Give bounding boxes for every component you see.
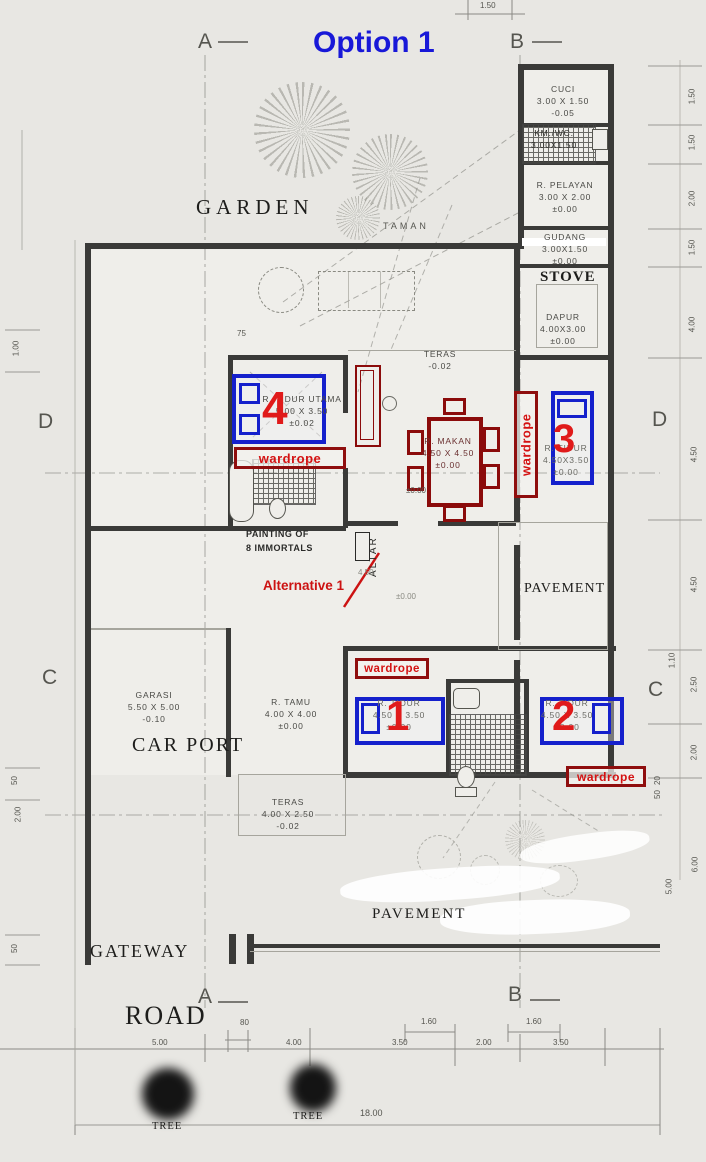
page-title: Option 1 bbox=[313, 26, 435, 60]
dim-right: 1.50 bbox=[687, 240, 696, 256]
wall-segment bbox=[520, 226, 608, 230]
dim-right: 1.10 bbox=[667, 653, 676, 669]
tree-label-2: TREE bbox=[293, 1111, 323, 1122]
dim-right: 4.50 bbox=[689, 447, 698, 463]
dim-total: 18.00 bbox=[360, 1108, 383, 1118]
room-name: R. MAKAN bbox=[422, 436, 474, 448]
garden-tree-icon bbox=[336, 196, 380, 240]
room-label-dapur: DAPUR 4.00X3.00 ±0.00 bbox=[540, 312, 586, 348]
pillow-icon bbox=[592, 703, 611, 734]
wardrobe-label-2: wardrope bbox=[566, 766, 646, 787]
gateway-post bbox=[247, 934, 254, 964]
room-level: ±0.00 bbox=[540, 336, 586, 348]
area-label-road: ROAD bbox=[125, 1001, 207, 1031]
room-dims: 5.50 X 5.00 bbox=[128, 702, 180, 714]
room-dims: 4.00 X 2.50 bbox=[262, 809, 314, 821]
painting-note-line2: 8 IMMORTALS bbox=[246, 542, 313, 556]
area-label-pavement-mid: PAVEMENT bbox=[524, 581, 605, 597]
tree-label-1: TREE bbox=[152, 1121, 182, 1132]
painting-note-line1: PAINTING OF bbox=[246, 528, 313, 542]
room-number-1: 1 bbox=[386, 692, 409, 740]
dim-right: 2.00 bbox=[689, 745, 698, 761]
wardrobe-label-1: wardrope bbox=[355, 658, 429, 679]
room-name: GARASI bbox=[128, 690, 180, 702]
faint-dim-fragment: 4.50 bbox=[358, 568, 374, 577]
chair-icon bbox=[443, 398, 466, 415]
floor-plan-sheet: Option 1 A B A B D D C C CUCI 3.00 X 1.5… bbox=[0, 0, 706, 1162]
sink-icon bbox=[453, 688, 480, 709]
dim-bottom-upper: 80 bbox=[240, 1018, 249, 1027]
room-level: ±0.00 bbox=[543, 467, 589, 479]
room-label-teras-bottom: TERAS 4.00 X 2.50 -0.02 bbox=[262, 797, 314, 833]
room-name: TERAS bbox=[262, 797, 314, 809]
pillow-icon bbox=[239, 414, 260, 435]
wardrobe-label-4: wardrope bbox=[234, 447, 346, 469]
chair-icon bbox=[443, 505, 466, 522]
room-label-tamu: R. TAMU 4.00 X 4.00 ±0.00 bbox=[265, 697, 317, 733]
dim-bottom-upper: 1.60 bbox=[526, 1017, 542, 1026]
area-label-stove: STOVE bbox=[540, 269, 596, 286]
dim-bottom: 5.00 bbox=[152, 1038, 168, 1047]
dim-right: 4.50 bbox=[689, 577, 698, 593]
dim-left: 1.00 bbox=[11, 341, 20, 357]
wall-segment bbox=[343, 646, 348, 777]
wall-segment bbox=[518, 64, 614, 70]
area-label-garden: GARDEN bbox=[196, 195, 314, 220]
garden-circle-feature bbox=[258, 267, 304, 313]
dim-right: 1.50 bbox=[687, 89, 696, 105]
dim-bottom: 3.50 bbox=[392, 1038, 408, 1047]
room-label-cuci: CUCI 3.00 X 1.50 -0.05 bbox=[537, 84, 589, 120]
dim-right: 2.50 bbox=[689, 677, 698, 693]
grid-label-c-right: C bbox=[648, 678, 663, 702]
room-number-4: 4 bbox=[262, 381, 288, 435]
planter-divider bbox=[348, 272, 349, 308]
room-name: GUDANG bbox=[542, 232, 588, 244]
dim-left: 50 bbox=[10, 776, 19, 785]
boundary-wall-line bbox=[250, 951, 660, 952]
room-level: ±0.00 bbox=[265, 721, 317, 733]
pillow-icon bbox=[239, 383, 260, 404]
grid-label-a-top: A bbox=[198, 30, 212, 54]
alternative-label: Alternative 1 bbox=[263, 578, 344, 593]
room-dims: 3.00X1.50 bbox=[542, 244, 588, 256]
room-dims: 3.00 X 2.00 bbox=[537, 192, 594, 204]
dim-75: 75 bbox=[237, 329, 246, 338]
grid-label-d-left: D bbox=[38, 410, 53, 434]
boundary-wall bbox=[250, 944, 660, 948]
wall-segment bbox=[446, 679, 529, 683]
dim-bottom: 4.00 bbox=[286, 1038, 302, 1047]
dim-bottom-upper: 1.60 bbox=[421, 1017, 437, 1026]
room-name: R. TAMU bbox=[265, 697, 317, 709]
wall-segment bbox=[85, 243, 91, 965]
room-label-makan: R. MAKAN 4.50 X 4.50 ±0.00 bbox=[422, 436, 474, 472]
room-level: ±0.00 bbox=[422, 460, 474, 472]
room-dims: 3.00X1.50 bbox=[531, 140, 577, 152]
dim-bottom: 3.50 bbox=[553, 1038, 569, 1047]
room-dims: 3.00 X 1.50 bbox=[537, 96, 589, 108]
room-label-teras-top: TERAS -0.02 bbox=[424, 349, 456, 373]
room-label-gudang: GUDANG 3.00X1.50 ±0.00 bbox=[542, 232, 588, 268]
room-name: R. PELAYAN bbox=[537, 180, 594, 192]
dim-top: 1.50 bbox=[480, 1, 496, 10]
area-label-gateway: GATEWAY bbox=[90, 941, 189, 962]
dim-left: 2.00 bbox=[13, 807, 22, 823]
area-label-taman: TAMAN bbox=[383, 221, 429, 231]
road-tree-icon bbox=[290, 1064, 336, 1112]
room-name: CUCI bbox=[537, 84, 589, 96]
planter-divider bbox=[380, 272, 381, 308]
garden-tree-icon bbox=[254, 82, 350, 178]
light-fixture-icon bbox=[382, 396, 397, 411]
dim-right: 2.00 bbox=[687, 191, 696, 207]
gateway-post bbox=[229, 934, 236, 964]
area-label-car-port: CAR PORT bbox=[132, 734, 244, 757]
grid-label-b-top: B bbox=[510, 30, 524, 54]
chair-icon bbox=[483, 427, 500, 452]
road-tree-icon bbox=[142, 1068, 194, 1120]
dim-right: 5.00 bbox=[664, 879, 673, 895]
wall-segment bbox=[343, 355, 348, 413]
room-label-garasi: GARASI 5.50 X 5.00 -0.10 bbox=[128, 690, 180, 726]
room-name: KM./WC. bbox=[531, 128, 577, 140]
dim-right: 6.00 bbox=[690, 857, 699, 873]
room-level: -0.02 bbox=[262, 821, 314, 833]
room-label-kmwc-annex: KM./WC. 3.00X1.50 bbox=[531, 128, 577, 152]
wardrobe-label-3: wardrope bbox=[514, 391, 538, 498]
room-level: -0.05 bbox=[537, 108, 589, 120]
room-level: ±0.00 bbox=[542, 256, 588, 268]
garden-planter-feature bbox=[318, 271, 415, 311]
room-number-3: 3 bbox=[553, 417, 575, 462]
wall-segment bbox=[608, 64, 614, 778]
wall-segment bbox=[520, 355, 608, 360]
room-level: -0.10 bbox=[128, 714, 180, 726]
room-level: ±0.00 bbox=[537, 204, 594, 216]
wall-segment bbox=[228, 355, 346, 360]
room-name: TERAS bbox=[424, 349, 456, 361]
dim-left: 50 bbox=[10, 944, 19, 953]
room-name: DAPUR bbox=[540, 312, 586, 324]
carport-edge bbox=[91, 628, 226, 630]
toilet-icon bbox=[592, 129, 608, 150]
room-level: -0.02 bbox=[424, 361, 456, 373]
bathtub-icon bbox=[229, 460, 254, 522]
chair-icon bbox=[483, 464, 500, 489]
room-dims: 4.50 X 4.50 bbox=[422, 448, 474, 460]
dim-right: 1.50 bbox=[687, 135, 696, 151]
wall-segment bbox=[343, 468, 348, 528]
area-label-pavement-bottom: PAVEMENT bbox=[372, 906, 466, 923]
grid-label-c-left: C bbox=[42, 666, 57, 690]
faint-level-fragment: ±0.00 bbox=[396, 592, 416, 601]
toilet-tank bbox=[455, 787, 477, 797]
wall-segment bbox=[514, 243, 520, 357]
room-label-pelayan: R. PELAYAN 3.00 X 2.00 ±0.00 bbox=[537, 180, 594, 216]
room-dims: 4.00 X 4.00 bbox=[265, 709, 317, 721]
dim-right: 50 bbox=[653, 790, 662, 799]
toilet-icon bbox=[269, 498, 286, 519]
wall-segment bbox=[346, 521, 398, 526]
faint-level-foyer: ±0.00 bbox=[406, 486, 426, 495]
wall-segment bbox=[85, 243, 520, 249]
pillow-icon bbox=[557, 399, 587, 418]
painting-note: PAINTING OF 8 IMMORTALS bbox=[246, 528, 313, 555]
grid-label-b-bottom: B bbox=[508, 983, 522, 1007]
cabinet-inner bbox=[360, 370, 374, 440]
grid-label-d-right: D bbox=[652, 408, 667, 432]
dim-right: 4.00 bbox=[687, 317, 696, 333]
toilet-icon bbox=[457, 766, 475, 788]
room-dims: 4.00X3.00 bbox=[540, 324, 586, 336]
room-number-2: 2 bbox=[552, 692, 575, 740]
dim-right: 20 bbox=[653, 776, 662, 785]
dim-bottom: 2.00 bbox=[476, 1038, 492, 1047]
